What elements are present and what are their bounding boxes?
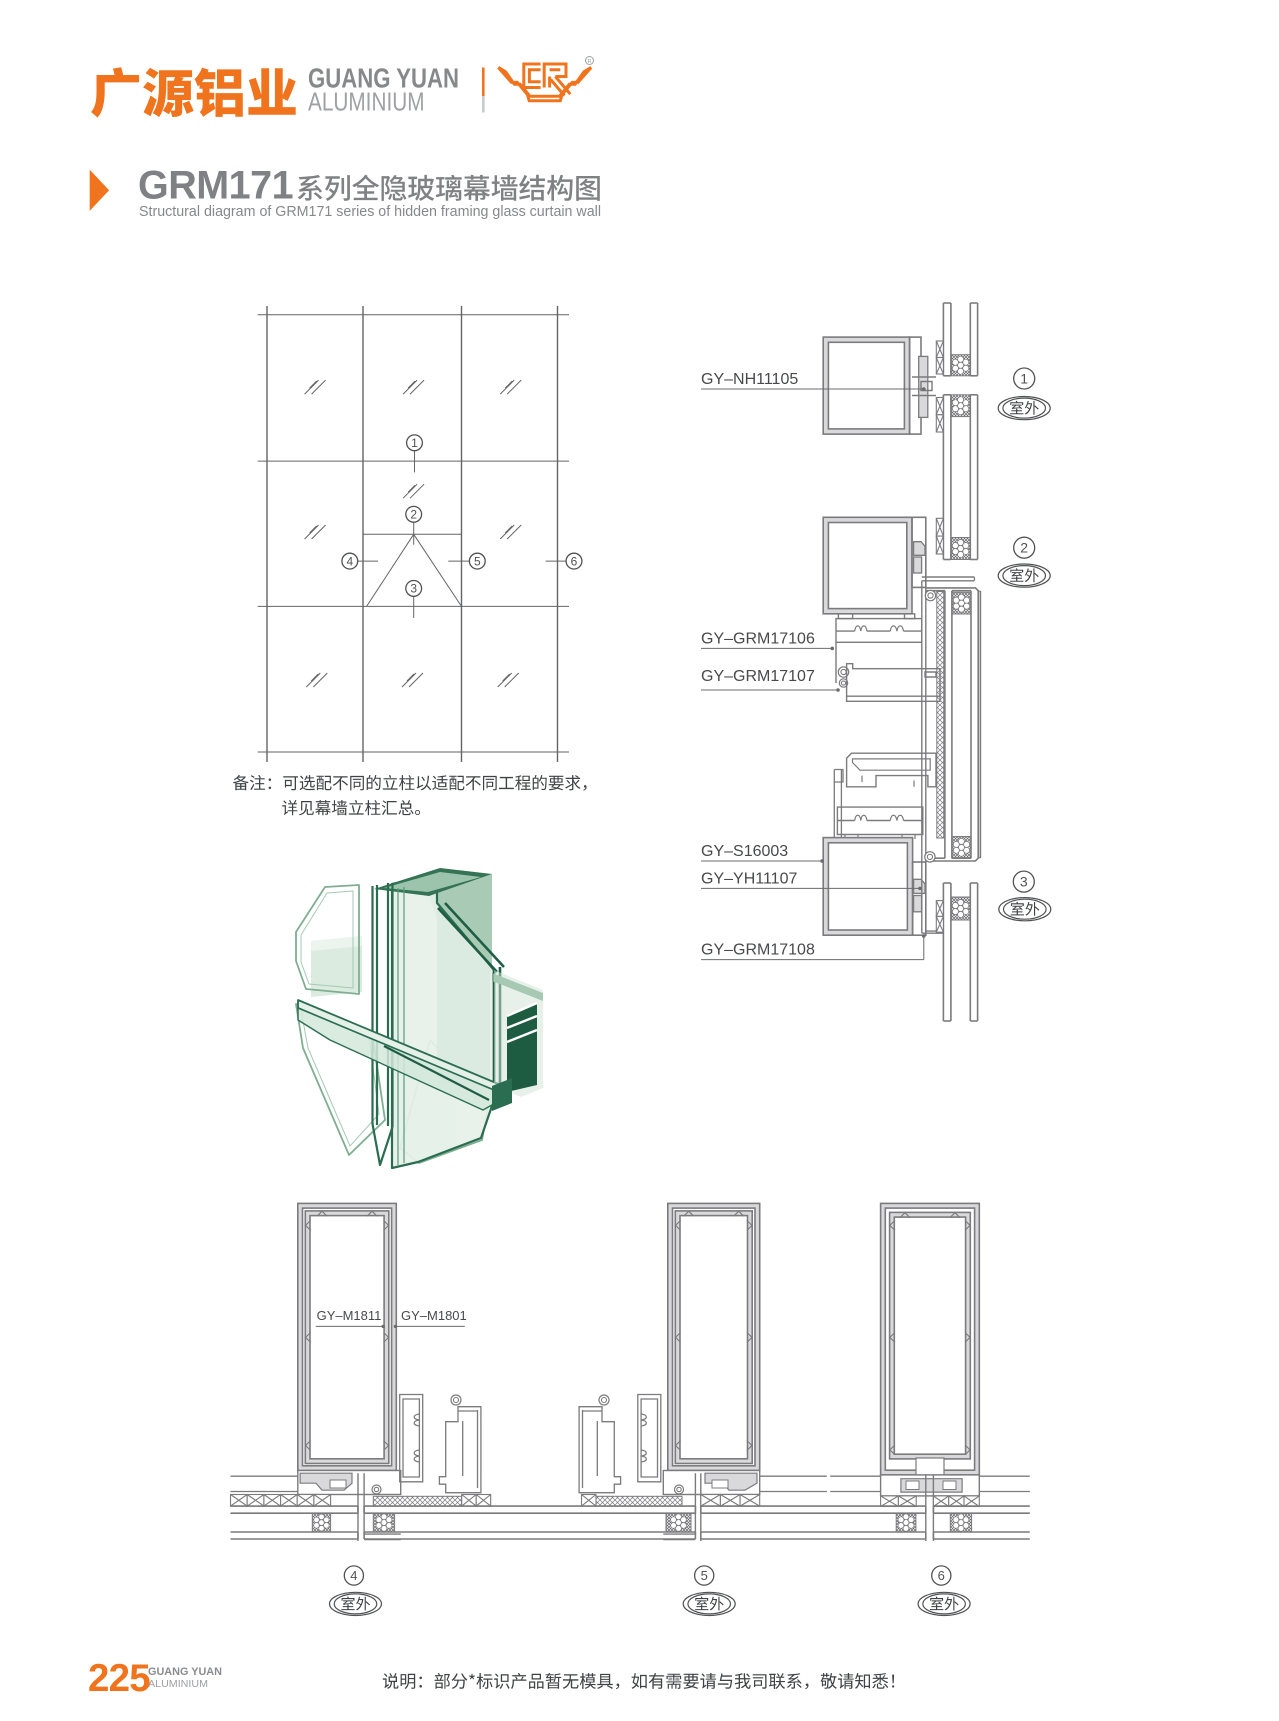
svg-text:GRM171: GRM171 [138,164,293,208]
svg-text:3: 3 [1020,874,1028,890]
svg-text:1: 1 [411,436,418,450]
svg-text:GY–NH11105: GY–NH11105 [701,371,798,388]
svg-text:6: 6 [571,554,578,568]
svg-text:6: 6 [938,1568,945,1583]
svg-text:225: 225 [88,1657,150,1700]
svg-text:ALUMINIUM: ALUMINIUM [148,1678,208,1690]
svg-text:GY–GRM17107: GY–GRM17107 [701,668,815,685]
svg-text:2: 2 [1020,540,1028,556]
svg-text:2: 2 [410,508,417,522]
svg-text:R: R [588,59,592,65]
svg-text:GY–GRM17108: GY–GRM17108 [701,942,815,959]
svg-text:GY–YH11107: GY–YH11107 [701,871,797,888]
svg-text:5: 5 [474,554,481,568]
svg-text:5: 5 [701,1568,708,1583]
svg-text:GY–GRM17106: GY–GRM17106 [701,631,815,648]
svg-text:1: 1 [1020,370,1028,386]
svg-text:GY–S16003: GY–S16003 [701,843,788,860]
svg-text:ALUMINIUM: ALUMINIUM [308,87,425,117]
svg-text:Structural diagram of GRM171: Structural diagram of GRM171 series of h… [139,203,601,220]
svg-text:GY–M1801: GY–M1801 [401,1308,467,1323]
svg-text:GUANG YUAN: GUANG YUAN [148,1666,222,1678]
svg-text:4: 4 [346,554,353,568]
svg-text:GY–M1811: GY–M1811 [317,1308,382,1323]
svg-text:3: 3 [410,582,417,596]
svg-text:4: 4 [350,1568,357,1583]
